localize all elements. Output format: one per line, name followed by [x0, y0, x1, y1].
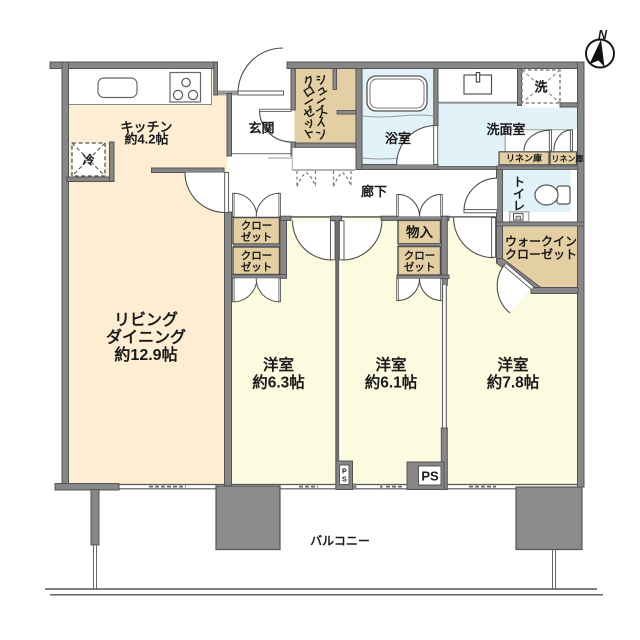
svg-text:廊下: 廊下: [361, 184, 387, 199]
svg-text:冷: 冷: [82, 152, 94, 167]
svg-text:浴室: 浴室: [385, 131, 411, 146]
svg-text:N: N: [598, 28, 608, 42]
svg-text:バルコニー: バルコニー: [310, 534, 370, 548]
svg-text:約6.1帖: 約6.1帖: [365, 373, 418, 392]
svg-text:ゼット: ゼット: [404, 261, 436, 274]
svg-text:物入: 物入: [406, 224, 433, 240]
svg-text:ウォークイン: ウォークイン: [505, 235, 577, 249]
svg-text:P: P: [342, 469, 347, 476]
svg-text:ゼット: ゼット: [241, 231, 273, 244]
svg-text:ゼット: ゼット: [241, 261, 273, 274]
svg-text:約12.9帖: 約12.9帖: [114, 345, 177, 364]
svg-text:レ: レ: [513, 199, 525, 213]
svg-text:洋室: 洋室: [375, 355, 406, 374]
svg-text:S: S: [342, 477, 347, 484]
svg-text:洗: 洗: [534, 80, 547, 95]
svg-text:約7.8帖: 約7.8帖: [487, 373, 540, 392]
svg-text:リネン庫: リネン庫: [506, 153, 542, 164]
svg-text:洋室: 洋室: [497, 355, 528, 374]
svg-text:PS: PS: [421, 469, 439, 484]
svg-text:クロー: クロー: [241, 220, 273, 232]
svg-text:約6.3帖: 約6.3帖: [252, 373, 305, 392]
svg-text:洗面室: 洗面室: [486, 122, 525, 137]
svg-text:玄関: 玄関: [248, 121, 274, 136]
svg-text:ダイニング: ダイニング: [106, 328, 186, 347]
svg-text:リネン庫: リネン庫: [552, 153, 584, 163]
svg-text:洋室: 洋室: [263, 355, 294, 374]
svg-text:約4.2帖: 約4.2帖: [124, 132, 168, 147]
svg-text:クロー: クロー: [241, 250, 273, 262]
svg-text:リビング: リビング: [114, 310, 178, 329]
svg-text:クローゼット: クローゼット: [505, 247, 577, 262]
svg-text:クロー: クロー: [404, 250, 436, 262]
